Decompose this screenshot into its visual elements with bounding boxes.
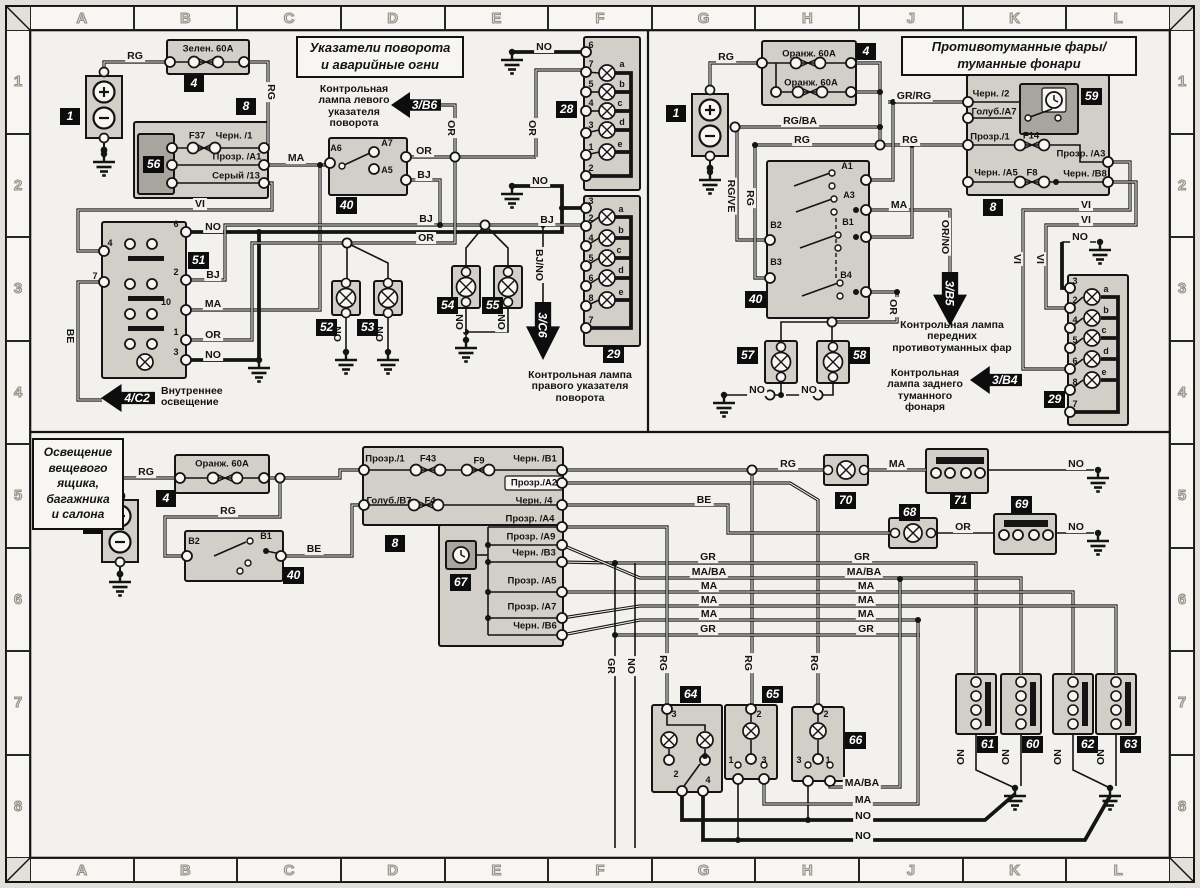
- grid-col-label-bottom: L: [1066, 858, 1170, 882]
- wire-label-OR: OR: [526, 118, 538, 138]
- section-title-fog-lights: Противотуманные фары/ туманные фонари: [901, 36, 1137, 76]
- pin-label-5: 5: [588, 79, 593, 89]
- section-title-turn-signals: Указатели поворота и аварийные огни: [296, 36, 464, 78]
- terminal-label: Серый /13: [212, 171, 260, 182]
- terminal-label: Черн. /B6: [513, 621, 557, 632]
- wire-label-NO: NO: [853, 810, 873, 822]
- arrow-label: 3/B5: [943, 280, 957, 305]
- component-tag-63: 63: [1120, 736, 1141, 753]
- pin-label-d: d: [618, 265, 624, 275]
- wire-label-OR: OR: [887, 297, 899, 317]
- terminal-label: Зелен. 60A: [183, 44, 234, 55]
- pin-label-6: 6: [1072, 356, 1077, 366]
- wire-label-NO: NO: [1066, 521, 1086, 533]
- wire-label-BE: BE: [695, 494, 714, 506]
- terminal-label: Черн. /1: [216, 131, 253, 142]
- wire-label-VI: VI: [1079, 214, 1093, 226]
- pin-label-c: c: [617, 98, 622, 108]
- pin-label-7: 7: [92, 271, 97, 281]
- wire-label-MA: MA: [203, 298, 223, 310]
- pin-label-2: 2: [588, 163, 593, 173]
- pin-label-e: e: [1101, 367, 1106, 377]
- pin-label-3: 3: [761, 755, 766, 765]
- terminal-label: Черн. /4: [516, 496, 553, 507]
- wire-label-BJ: BJ: [204, 269, 221, 281]
- component-tag-1: 1: [666, 105, 686, 122]
- pin-label-A6: A6: [330, 143, 342, 153]
- pin-label-4: 4: [705, 775, 710, 785]
- terminal-label: Прозр. /A1: [213, 152, 262, 163]
- wire-label-NO: NO: [1066, 458, 1086, 470]
- grid-col-label-top: C: [237, 6, 341, 30]
- grid-col-label-top: H: [755, 6, 859, 30]
- grid-col-label-bottom: F: [548, 858, 652, 882]
- pin-label-6: 6: [173, 219, 178, 229]
- component-tag-40: 40: [745, 291, 766, 308]
- pin-label-A3: A3: [843, 190, 855, 200]
- terminal-label: Прозр. /A3: [1057, 149, 1106, 160]
- grid-row-label-right: 7: [1170, 651, 1194, 755]
- terminal-label: Оранж. 60A: [784, 78, 838, 89]
- grid-row-label-left: 5: [6, 444, 30, 548]
- grid-col-label-bottom: J: [859, 858, 963, 882]
- terminal-label: Черн. /B3: [512, 548, 556, 559]
- pin-label-3: 3: [671, 709, 676, 719]
- pin-label-c: c: [1101, 325, 1106, 335]
- wire-label-NO: NO: [999, 747, 1011, 767]
- section-title-interior-lighting: Освещение вещевого ящика, багажника и са…: [32, 438, 124, 530]
- component-tag-8: 8: [983, 199, 1003, 216]
- pin-label-4: 4: [588, 233, 593, 243]
- component-tag-29: 29: [603, 346, 624, 363]
- wire-label-VI: VI: [1079, 199, 1093, 211]
- terminal-label: F43: [420, 454, 436, 465]
- wire-label-NO: NO: [495, 312, 507, 332]
- component-tag-52: 52: [316, 319, 337, 336]
- pin-label-1: 1: [728, 755, 733, 765]
- terminal-label: F4: [424, 496, 435, 507]
- wire-label-RG: RG: [778, 458, 798, 470]
- component-tag-29: 29: [1044, 391, 1065, 408]
- grid-row-label-right: 6: [1170, 548, 1194, 652]
- wire-label-BJ: BJ: [538, 214, 555, 226]
- grid-row-label-right: 2: [1170, 134, 1194, 238]
- pin-label-6: 6: [588, 40, 593, 50]
- wire-label-MA: MA: [853, 794, 873, 806]
- wire-label-RG: RG: [808, 653, 820, 673]
- pin-label-4: 4: [107, 238, 112, 248]
- arrow-label: 3/B4: [992, 373, 1017, 387]
- pin-label-8: 8: [588, 293, 593, 303]
- terminal-label: Прозр. /A5: [508, 576, 557, 587]
- pin-label-d: d: [619, 117, 625, 127]
- wire-label-OR: OR: [416, 232, 436, 244]
- wire-label-GR: GR: [698, 623, 718, 635]
- grid-col-label-bottom: G: [652, 858, 756, 882]
- wire-label-VI: VI: [1011, 252, 1023, 266]
- wire-label-MA: MA: [699, 580, 719, 592]
- wire-label-RG: RG: [657, 653, 669, 673]
- terminal-label: F14: [1023, 131, 1039, 142]
- wire-label-NO: NO: [534, 41, 554, 53]
- component-tag-40: 40: [283, 567, 304, 584]
- pin-label-4: 4: [588, 98, 593, 108]
- component-tag-61: 61: [977, 736, 998, 753]
- wire-label-RGVE: RG/VE: [725, 178, 737, 215]
- wire-label-BE: BE: [305, 543, 324, 555]
- component-tag-57: 57: [737, 347, 758, 364]
- terminal-label: Прозр. /A9: [507, 532, 556, 543]
- pin-label-10: 10: [161, 297, 171, 307]
- pin-label-d: d: [1103, 346, 1109, 356]
- pin-label-a: a: [619, 59, 624, 69]
- wire-label-NO: NO: [203, 221, 223, 233]
- pin-label-2: 2: [756, 709, 761, 719]
- pin-label-B1: B1: [260, 531, 272, 541]
- wire-label-NO: NO: [1051, 747, 1063, 767]
- pin-label-1: 1: [588, 142, 593, 152]
- component-tag-64: 64: [680, 686, 701, 703]
- pin-label-2: 2: [673, 769, 678, 779]
- pin-label-A5: A5: [381, 165, 393, 175]
- grid-row-label-right: 4: [1170, 341, 1194, 445]
- grid-row-label-left: 4: [6, 341, 30, 445]
- wire-label-MA: MA: [856, 580, 876, 592]
- pin-label-7: 7: [1072, 399, 1077, 409]
- pin-label-a: a: [1103, 284, 1108, 294]
- pin-label-2: 2: [173, 267, 178, 277]
- wire-label-BJ: BJ: [415, 169, 432, 181]
- wire-label-OR: OR: [953, 521, 973, 533]
- arrow-label: 4/C2: [125, 391, 150, 405]
- component-tag-4: 4: [856, 43, 876, 60]
- wire-label-MA: MA: [699, 608, 719, 620]
- pin-label-b: b: [1103, 305, 1109, 315]
- pin-label-B3: B3: [770, 257, 782, 267]
- pin-label-3: 3: [588, 120, 593, 130]
- component-tag-28: 28: [556, 101, 577, 118]
- wire-label-ORNO: OR/NO: [939, 218, 951, 256]
- wire-label-OR: OR: [414, 145, 434, 157]
- pin-label-c: c: [616, 245, 621, 255]
- component-tag-40: 40: [336, 197, 357, 214]
- pin-label-4: 4: [1072, 315, 1077, 325]
- terminal-label: Прозр./A2: [511, 478, 557, 489]
- pin-label-b: b: [619, 79, 625, 89]
- pin-label-5: 5: [588, 253, 593, 263]
- wire-label-MA: MA: [699, 594, 719, 606]
- grid-row-label-right: 5: [1170, 444, 1194, 548]
- component-tag-71: 71: [950, 492, 971, 509]
- pin-label-B1: B1: [842, 217, 854, 227]
- wire-label-GR: GR: [698, 551, 718, 563]
- component-tag-67: 67: [450, 574, 471, 591]
- pin-label-3: 3: [796, 755, 801, 765]
- terminal-label: Прозр. /A4: [506, 514, 555, 525]
- component-tag-60: 60: [1022, 736, 1043, 753]
- pin-label-2: 2: [1072, 295, 1077, 305]
- component-tag-51: 51: [188, 252, 209, 269]
- wire-label-RG: RG: [265, 82, 277, 102]
- pin-label-5: 5: [1072, 335, 1077, 345]
- grid-col-label-bottom: E: [445, 858, 549, 882]
- component-tag-4: 4: [184, 75, 204, 92]
- grid-row-label-left: 8: [6, 755, 30, 859]
- wire-label-OR: OR: [445, 118, 457, 138]
- wire-label-NO: NO: [799, 384, 819, 396]
- terminal-label: Черн. /B1: [513, 454, 557, 465]
- wire-label-OR: OR: [203, 329, 223, 341]
- wire-label-NO: NO: [747, 384, 767, 396]
- wiring-diagram-page: Указатели поворота и аварийные огни Прот…: [0, 0, 1200, 888]
- pin-label-7: 7: [588, 59, 593, 69]
- wire-label-MABA: MA/BA: [845, 566, 883, 578]
- component-tag-70: 70: [835, 492, 856, 509]
- grid-col-label-top: E: [445, 6, 549, 30]
- grid-col-label-top: J: [859, 6, 963, 30]
- component-tag-69: 69: [1011, 496, 1032, 513]
- grid-row-label-right: 8: [1170, 755, 1194, 859]
- pin-label-b: b: [618, 225, 624, 235]
- wiring-art: [0, 0, 1200, 888]
- wire-label-RG: RG: [136, 466, 156, 478]
- component-tag-1: 1: [60, 108, 80, 125]
- pin-label-7: 7: [588, 315, 593, 325]
- pin-label-6: 6: [588, 273, 593, 283]
- annotation: Контрольная лампа правого указателя пово…: [528, 370, 632, 404]
- terminal-label: Черн. /2: [973, 89, 1010, 100]
- wire-label-VI: VI: [1034, 252, 1046, 266]
- terminal-label: Прозр./1: [970, 132, 1009, 143]
- wire-label-MA: MA: [887, 458, 907, 470]
- wire-label-MABA: MA/BA: [690, 566, 728, 578]
- grid-row-label-left: 1: [6, 30, 30, 134]
- pin-label-8: 8: [1072, 377, 1077, 387]
- pin-label-A7: A7: [381, 138, 393, 148]
- grid-col-label-bottom: B: [134, 858, 238, 882]
- pin-label-2: 2: [588, 213, 593, 223]
- wire-label-NO: NO: [954, 747, 966, 767]
- component-tag-58: 58: [849, 347, 870, 364]
- component-tag-66: 66: [845, 732, 866, 749]
- pin-label-A1: A1: [841, 161, 853, 171]
- grid-col-label-top: L: [1066, 6, 1170, 30]
- component-tag-65: 65: [762, 686, 783, 703]
- pin-label-1: 1: [173, 327, 178, 337]
- wire-label-RG: RG: [742, 653, 754, 673]
- wire-label-RG: RG: [716, 51, 736, 63]
- component-tag-54: 54: [437, 297, 458, 314]
- wire-label-RG: RG: [792, 134, 812, 146]
- component-tag-53: 53: [357, 319, 378, 336]
- wire-label-GR: GR: [856, 623, 876, 635]
- grid-row-label-right: 1: [1170, 30, 1194, 134]
- terminal-label: Прозр. /A7: [508, 602, 557, 613]
- terminal-label: Голуб./B7: [367, 496, 412, 507]
- wire-label-RG: RG: [900, 134, 920, 146]
- grid-col-label-top: F: [548, 6, 652, 30]
- terminal-label: Черн. /B8: [1063, 169, 1107, 180]
- component-tag-56: 56: [143, 156, 164, 173]
- grid-col-label-bottom: K: [963, 858, 1067, 882]
- component-tag-8: 8: [385, 535, 405, 552]
- grid-col-label-top: A: [30, 6, 134, 30]
- terminal-label: Голуб./A7: [972, 107, 1017, 118]
- wire-label-GR: GR: [605, 656, 617, 676]
- pin-label-B2: B2: [188, 536, 200, 546]
- component-tag-8: 8: [236, 98, 256, 115]
- grid-row-label-right: 3: [1170, 237, 1194, 341]
- wire-label-MA: MA: [856, 594, 876, 606]
- terminal-label: F9: [473, 456, 484, 467]
- pin-label-3: 3: [1072, 276, 1077, 286]
- terminal-label: F37: [189, 131, 205, 142]
- wire-label-RG: RG: [218, 505, 238, 517]
- grid-col-label-bottom: D: [341, 858, 445, 882]
- grid-row-label-left: 7: [6, 651, 30, 755]
- arrow-label: 3/C6: [536, 312, 550, 337]
- grid-col-label-top: D: [341, 6, 445, 30]
- wire-label-NO: NO: [1070, 231, 1090, 243]
- wire-label-MA: MA: [856, 608, 876, 620]
- pin-label-B2: B2: [770, 220, 782, 230]
- grid-col-label-bottom: A: [30, 858, 134, 882]
- wire-label-BE: BE: [64, 327, 76, 346]
- arrow-label: 3/B6: [412, 98, 437, 112]
- terminal-label: Оранж. 60A: [782, 49, 836, 60]
- wire-label-MABA: MA/BA: [843, 777, 881, 789]
- component-tag-4: 4: [156, 490, 176, 507]
- terminal-label: Оранж. 60A: [195, 459, 249, 470]
- pin-label-e: e: [617, 139, 622, 149]
- wire-label-MA: MA: [286, 152, 306, 164]
- wire-label-BJNO: BJ/NO: [533, 247, 545, 283]
- wire-label-NO: NO: [203, 349, 223, 361]
- wire-label-NO: NO: [853, 830, 873, 842]
- grid-col-label-top: K: [963, 6, 1067, 30]
- terminal-label: F8: [1026, 168, 1037, 179]
- wire-label-RG: RG: [125, 50, 145, 62]
- pin-label-2: 2: [823, 709, 828, 719]
- component-tag-68: 68: [899, 504, 920, 521]
- annotation: Внутреннее освещение: [161, 386, 223, 409]
- wire-label-NO: NO: [625, 656, 637, 676]
- pin-label-B4: B4: [840, 270, 852, 280]
- wire-label-VI: VI: [193, 198, 207, 210]
- pin-label-3: 3: [588, 196, 593, 206]
- pin-label-3: 3: [173, 347, 178, 357]
- wire-label-RG: RG: [744, 188, 756, 208]
- wire-label-MA: MA: [889, 199, 909, 211]
- grid-col-label-bottom: C: [237, 858, 341, 882]
- annotation: Контрольная лампа левого указателя повор…: [318, 84, 389, 129]
- wire-label-NO: NO: [453, 312, 465, 332]
- pin-label-1: 1: [825, 755, 830, 765]
- wire-label-GR: GR: [852, 551, 872, 563]
- wire-label-RGBA: RG/BA: [781, 115, 819, 127]
- wire-label-GRRG: GR/RG: [895, 90, 933, 102]
- annotation: Контрольная лампа передних противотуманн…: [892, 320, 1011, 354]
- annotation: Контрольная лампа заднего туманного фона…: [887, 368, 963, 413]
- grid-col-label-top: B: [134, 6, 238, 30]
- terminal-label: Прозр./1: [365, 454, 404, 465]
- grid-col-label-top: G: [652, 6, 756, 30]
- grid-col-label-bottom: H: [755, 858, 859, 882]
- pin-label-e: e: [618, 287, 623, 297]
- terminal-label: Черн. /A5: [974, 168, 1018, 179]
- component-tag-62: 62: [1077, 736, 1098, 753]
- component-tag-59: 59: [1081, 88, 1102, 105]
- pin-label-a: a: [618, 204, 623, 214]
- component-tag-55: 55: [482, 297, 503, 314]
- grid-row-label-left: 6: [6, 548, 30, 652]
- wire-label-BJ: BJ: [417, 213, 434, 225]
- wire-label-NO: NO: [530, 175, 550, 187]
- grid-row-label-left: 3: [6, 237, 30, 341]
- grid-row-label-left: 2: [6, 134, 30, 238]
